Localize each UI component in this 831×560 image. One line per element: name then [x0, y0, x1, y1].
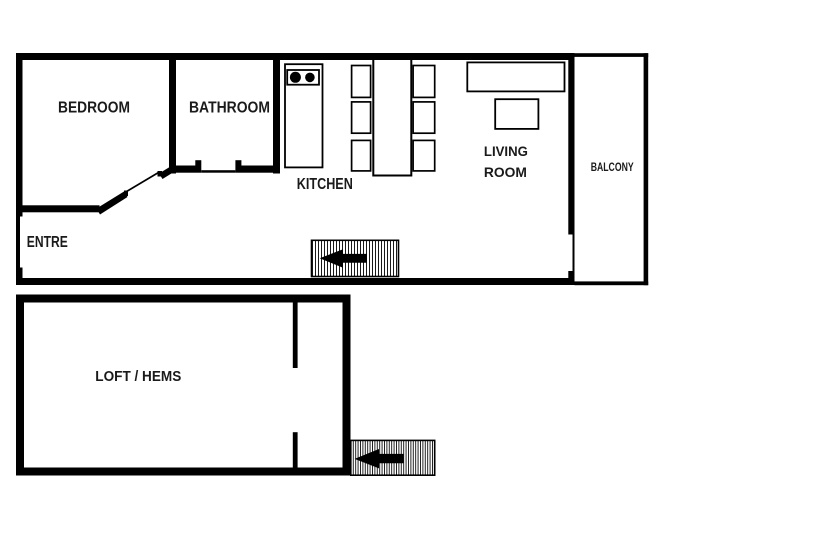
svg-text:LOFT / HEMS: LOFT / HEMS: [95, 369, 181, 385]
svg-text:LIVING: LIVING: [484, 143, 528, 159]
svg-text:ENTRE: ENTRE: [27, 234, 68, 251]
svg-text:KITCHEN: KITCHEN: [297, 176, 353, 193]
svg-text:BALCONY: BALCONY: [591, 162, 634, 174]
svg-text:BATHROOM: BATHROOM: [189, 100, 270, 117]
svg-text:BEDROOM: BEDROOM: [58, 100, 130, 117]
svg-text:ROOM: ROOM: [484, 164, 527, 180]
